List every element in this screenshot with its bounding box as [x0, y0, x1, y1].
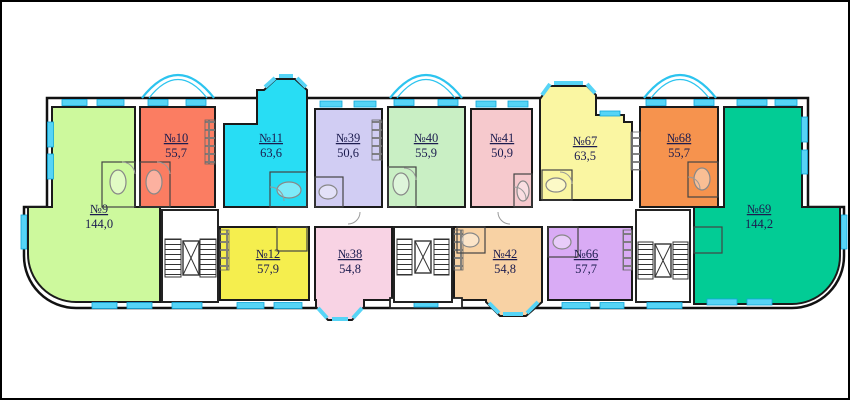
- apartment-area-38: 54,8: [339, 262, 361, 276]
- apartment-number-39: №39: [336, 131, 360, 145]
- elevator-icon[interactable]: [655, 244, 671, 277]
- apartment-number-38: №38: [338, 247, 362, 261]
- window: [841, 215, 847, 249]
- stairs[interactable]: [165, 239, 181, 277]
- apartment-number-40: №40: [414, 131, 438, 145]
- stairs[interactable]: [434, 239, 449, 275]
- stairwell-left: [162, 210, 218, 302]
- apartment-number-69: №69: [747, 202, 771, 216]
- apartment-area-42: 54,8: [494, 262, 516, 276]
- apartment-area-10: 55,7: [165, 146, 187, 160]
- apartment-area-67: 63,5: [574, 149, 596, 163]
- elevator-icon[interactable]: [183, 241, 199, 275]
- apartment-number-42: №42: [493, 247, 517, 261]
- balcony-arc-40: [390, 75, 462, 98]
- balcony-arc-68: [644, 75, 716, 98]
- floor-plan-canvas: №9 144,0 №10 55,7 №11 63,6 №39 50,6 №40 …: [0, 0, 850, 400]
- floor-plan-drawing: №9 144,0 №10 55,7 №11 63,6 №39 50,6 №40 …: [2, 2, 850, 400]
- apartment-area-9: 144,0: [85, 217, 113, 231]
- stairs[interactable]: [397, 239, 412, 275]
- apartment-area-11: 63,6: [260, 146, 282, 160]
- apartment-area-40: 55,9: [415, 146, 437, 160]
- apartment-area-39: 50,6: [337, 146, 359, 160]
- apartment-number-9: №9: [90, 202, 108, 216]
- apartment-area-41: 50,9: [491, 146, 513, 160]
- apartment-area-69: 144,2: [745, 217, 773, 231]
- apartment-number-68: №68: [667, 131, 691, 145]
- elevator-icon[interactable]: [415, 241, 431, 273]
- stairwell-right: [636, 210, 690, 302]
- stairs[interactable]: [673, 242, 688, 279]
- balcony-arc-10: [142, 75, 214, 98]
- apartment-number-67: №67: [573, 134, 597, 148]
- apartment-unit-12[interactable]: №12 57,9: [220, 227, 309, 300]
- apartment-area-12: 57,9: [257, 262, 279, 276]
- apartment-area-68: 55,7: [668, 146, 690, 160]
- apartment-unit-68[interactable]: №68 55,7: [640, 107, 718, 207]
- window: [600, 111, 620, 116]
- stairwell-middle: [394, 227, 452, 302]
- apartment-number-10: №10: [164, 131, 188, 145]
- window: [21, 215, 27, 249]
- apartment-area-66: 57,7: [575, 262, 597, 276]
- stairs[interactable]: [200, 239, 216, 277]
- apartment-number-41: №41: [490, 131, 514, 145]
- stairs[interactable]: [638, 242, 653, 279]
- apartment-number-11: №11: [259, 131, 283, 145]
